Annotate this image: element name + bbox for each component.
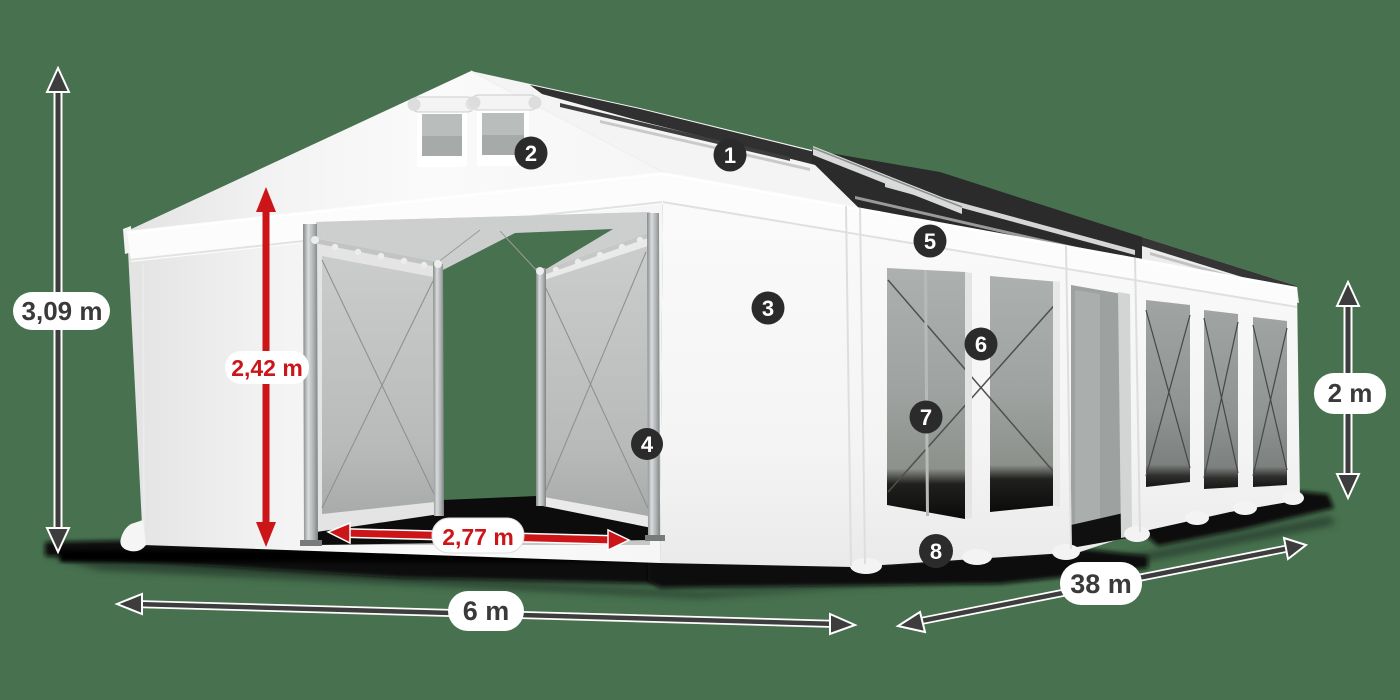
svg-text:2,42 m: 2,42 m [231,355,303,381]
svg-text:7: 7 [920,405,932,430]
svg-text:38 m: 38 m [1070,569,1132,599]
svg-text:1: 1 [724,143,736,168]
svg-text:3: 3 [762,296,774,321]
svg-text:2 m: 2 m [1328,378,1373,408]
svg-text:5: 5 [924,229,936,254]
svg-text:3,09 m: 3,09 m [22,296,103,326]
svg-text:2: 2 [525,141,537,166]
svg-text:8: 8 [930,539,942,564]
svg-text:2,77 m: 2,77 m [442,524,514,550]
svg-text:6 m: 6 m [463,596,510,626]
svg-text:4: 4 [641,432,654,457]
svg-text:6: 6 [975,332,987,357]
